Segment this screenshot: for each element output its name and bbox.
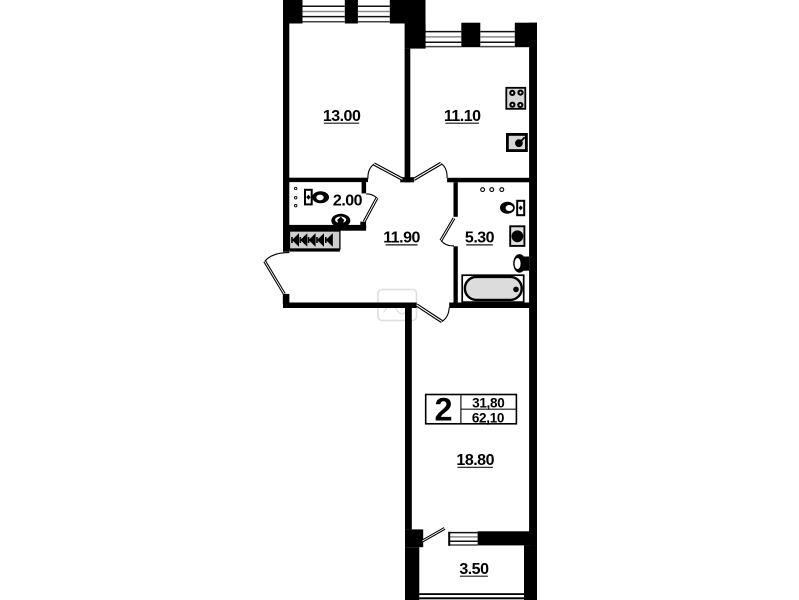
svg-text:11.90: 11.90	[383, 229, 420, 246]
svg-text:31,80: 31,80	[472, 395, 504, 410]
svg-text:13.00: 13.00	[323, 108, 361, 125]
svg-text:5.30: 5.30	[465, 229, 495, 246]
svg-text:2.00: 2.00	[333, 192, 363, 209]
svg-text:3.50: 3.50	[459, 561, 489, 578]
svg-text:11.10: 11.10	[444, 108, 481, 125]
svg-text:18.80: 18.80	[456, 452, 494, 469]
svg-text:2: 2	[434, 392, 452, 428]
svg-text:62,10: 62,10	[472, 410, 504, 425]
